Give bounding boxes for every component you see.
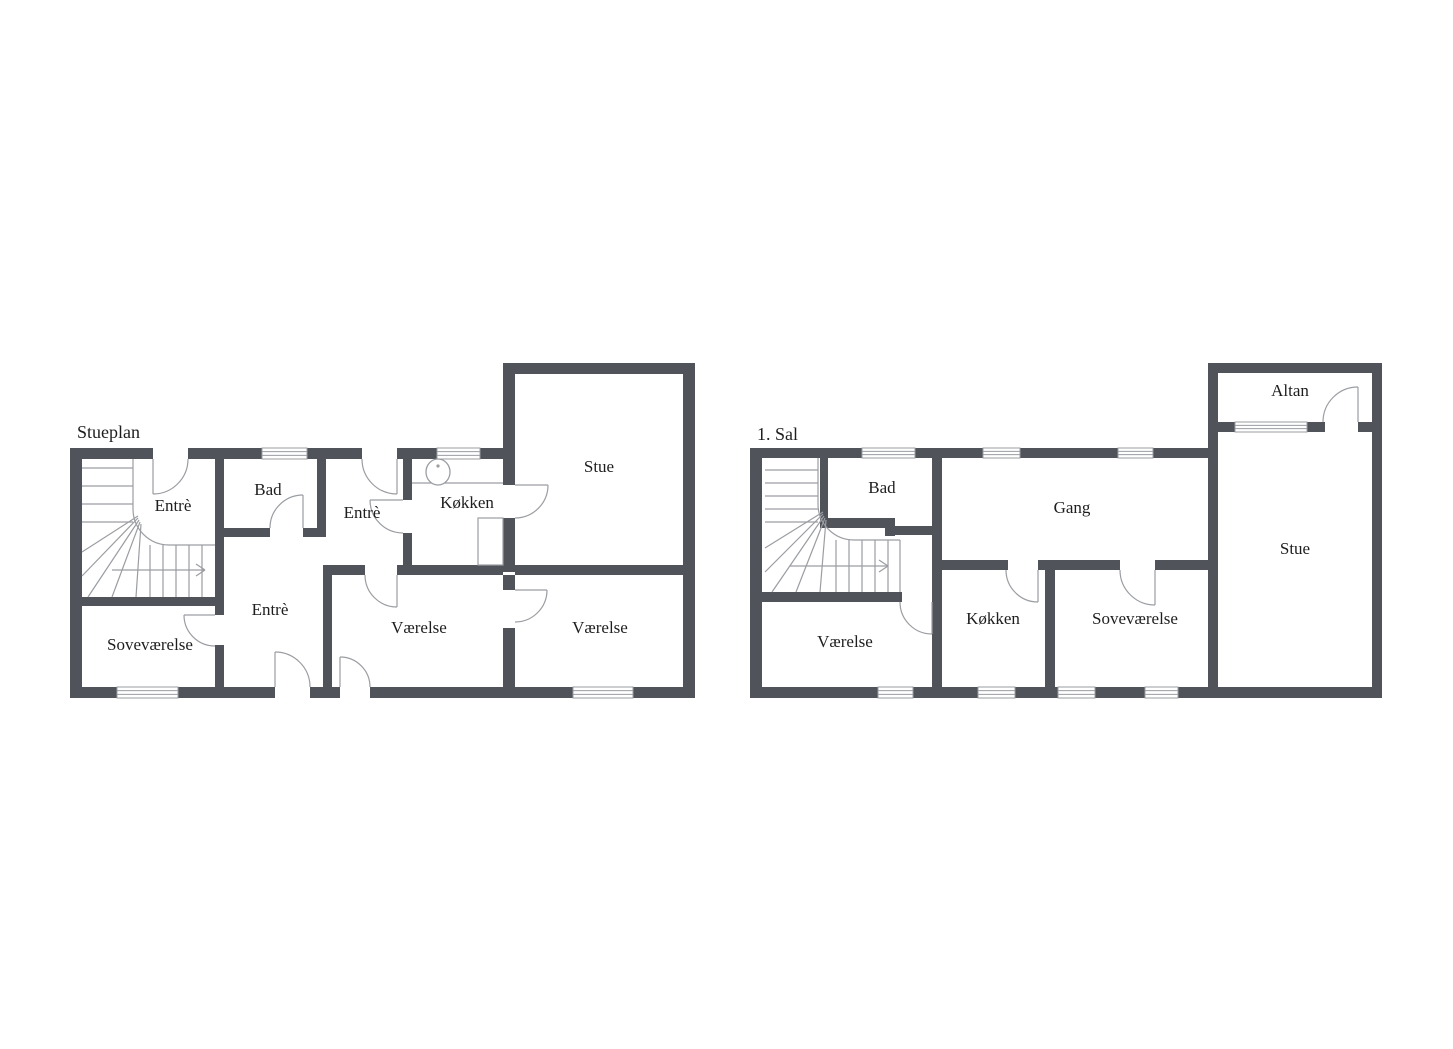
room-label: Entrè xyxy=(344,503,381,522)
window-icon xyxy=(983,448,1020,458)
wall-segment xyxy=(503,363,695,374)
wall-segment xyxy=(750,687,878,698)
window-frame xyxy=(1145,687,1178,698)
room-label: Værelse xyxy=(572,618,628,637)
room-label: Altan xyxy=(1271,381,1309,400)
wall-segment xyxy=(317,459,326,537)
wall-segment xyxy=(942,560,1008,570)
window-frame xyxy=(878,687,913,698)
door-swing-arc xyxy=(365,575,397,607)
sink-drain-dot xyxy=(436,464,439,467)
wall-segment xyxy=(1095,687,1145,698)
room-label: Værelse xyxy=(817,632,873,651)
stairs-direction-arrow xyxy=(879,560,888,566)
wall-segment xyxy=(307,448,362,459)
wall-segment xyxy=(503,575,515,590)
wall-segment xyxy=(750,448,762,698)
door-swing-arc xyxy=(362,459,397,494)
room-label: Soveværelse xyxy=(107,635,193,654)
stairs-direction-arrow xyxy=(879,566,888,572)
wall-segment xyxy=(215,605,224,615)
wall-segment xyxy=(1153,448,1208,458)
wall-segment xyxy=(70,448,82,698)
door-swing-arc xyxy=(1323,387,1358,422)
room-label: Køkken xyxy=(966,609,1020,628)
wall-segment xyxy=(633,687,695,698)
window-frame xyxy=(983,448,1020,458)
door-swing-arc xyxy=(515,590,547,622)
door-swing-arc xyxy=(515,485,548,518)
window-frame xyxy=(1118,448,1153,458)
wall-segment xyxy=(1178,687,1382,698)
window-frame xyxy=(573,687,633,698)
door-swing-arc xyxy=(1120,570,1155,605)
window-icon xyxy=(1235,422,1307,432)
window-icon xyxy=(1118,448,1153,458)
wall-segment xyxy=(885,526,935,535)
stairs-direction-arrow xyxy=(196,564,205,570)
room-label: Entrè xyxy=(252,600,289,619)
door-swing-arc xyxy=(153,459,188,494)
kitchen-counter xyxy=(478,518,503,565)
window-icon xyxy=(878,687,913,698)
wall-segment xyxy=(310,687,340,698)
wall-segment xyxy=(1208,363,1382,373)
window-frame xyxy=(862,448,915,458)
wall-segment xyxy=(397,565,503,575)
wall-segment xyxy=(188,448,262,459)
floor-plan-first-floor: 1. Sal AltanBadGangStueVærelseKøkkenSove… xyxy=(750,363,1382,698)
stair-tread-line xyxy=(136,524,141,597)
door-swing-arc xyxy=(340,657,370,687)
wall-segment xyxy=(1155,560,1208,570)
wall-segment xyxy=(515,565,683,575)
window-icon xyxy=(1058,687,1095,698)
wall-segment xyxy=(503,518,515,572)
floor-plan-stueplan: Stueplan EntrèBadEntrèKøkkenStueSovevære… xyxy=(70,363,695,698)
wall-segment xyxy=(70,687,117,698)
wall-segment xyxy=(913,687,978,698)
wall-segment xyxy=(1358,422,1372,432)
window-icon xyxy=(573,687,633,698)
wall-segment xyxy=(1015,687,1058,698)
stair-tread-line xyxy=(112,522,140,597)
wall-segment xyxy=(215,645,224,687)
wall-segment xyxy=(1020,448,1118,458)
room-label: Stue xyxy=(1280,539,1310,558)
window-frame xyxy=(1235,422,1307,432)
door-swing-arc xyxy=(1006,570,1038,602)
floor-plans-canvas: Stueplan EntrèBadEntrèKøkkenStueSovevære… xyxy=(0,0,1453,1049)
window-icon xyxy=(978,687,1015,698)
wall-segment xyxy=(750,448,862,458)
wall-segment xyxy=(370,687,573,698)
door-swing-arc xyxy=(900,602,932,634)
window-frame xyxy=(117,687,178,698)
room-label: Soveværelse xyxy=(1092,609,1178,628)
window-frame xyxy=(978,687,1015,698)
wall-segment xyxy=(323,565,332,687)
window-frame xyxy=(262,448,307,459)
plan-title-first-floor: 1. Sal xyxy=(757,424,798,444)
window-icon xyxy=(862,448,915,458)
room-label: Værelse xyxy=(391,618,447,637)
wall-segment xyxy=(932,458,942,687)
stair-tread-line xyxy=(820,520,826,592)
wall-segment xyxy=(503,363,515,485)
room-label: Bad xyxy=(254,480,282,499)
room-label: Gang xyxy=(1054,498,1091,517)
wall-segment xyxy=(70,597,224,606)
wall-segment xyxy=(683,363,695,698)
wall-segment xyxy=(403,459,412,500)
window-icon xyxy=(117,687,178,698)
room-label: Bad xyxy=(868,478,896,497)
wall-segment xyxy=(1372,363,1382,698)
wall-segment xyxy=(403,533,412,565)
door-swing-arc xyxy=(275,652,310,687)
room-label: Entrè xyxy=(155,496,192,515)
wall-segment xyxy=(70,448,153,459)
wall-segment xyxy=(1208,363,1218,687)
door-swing-arc xyxy=(270,495,303,528)
wall-segment xyxy=(1045,560,1055,687)
wall-segment xyxy=(1307,422,1325,432)
room-label: Stue xyxy=(584,457,614,476)
wall-segment xyxy=(1218,422,1235,432)
wall-segment xyxy=(215,528,270,537)
floor-plan-sheet: Stueplan EntrèBadEntrèKøkkenStueSovevære… xyxy=(0,0,1453,1049)
plan-title-stueplan: Stueplan xyxy=(77,422,140,442)
wall-segment xyxy=(397,448,437,459)
stairs-direction-arrow xyxy=(196,570,205,576)
sink-icon xyxy=(426,459,450,485)
wall-segment xyxy=(178,687,275,698)
wall-segment xyxy=(750,592,902,602)
wall-segment xyxy=(503,628,515,687)
window-icon xyxy=(262,448,307,459)
wall-segment xyxy=(915,448,983,458)
window-frame xyxy=(437,448,480,459)
window-icon xyxy=(1145,687,1178,698)
window-icon xyxy=(437,448,480,459)
room-label: Køkken xyxy=(440,493,494,512)
window-frame xyxy=(1058,687,1095,698)
wall-segment xyxy=(820,458,828,528)
wall-segment xyxy=(820,518,890,528)
